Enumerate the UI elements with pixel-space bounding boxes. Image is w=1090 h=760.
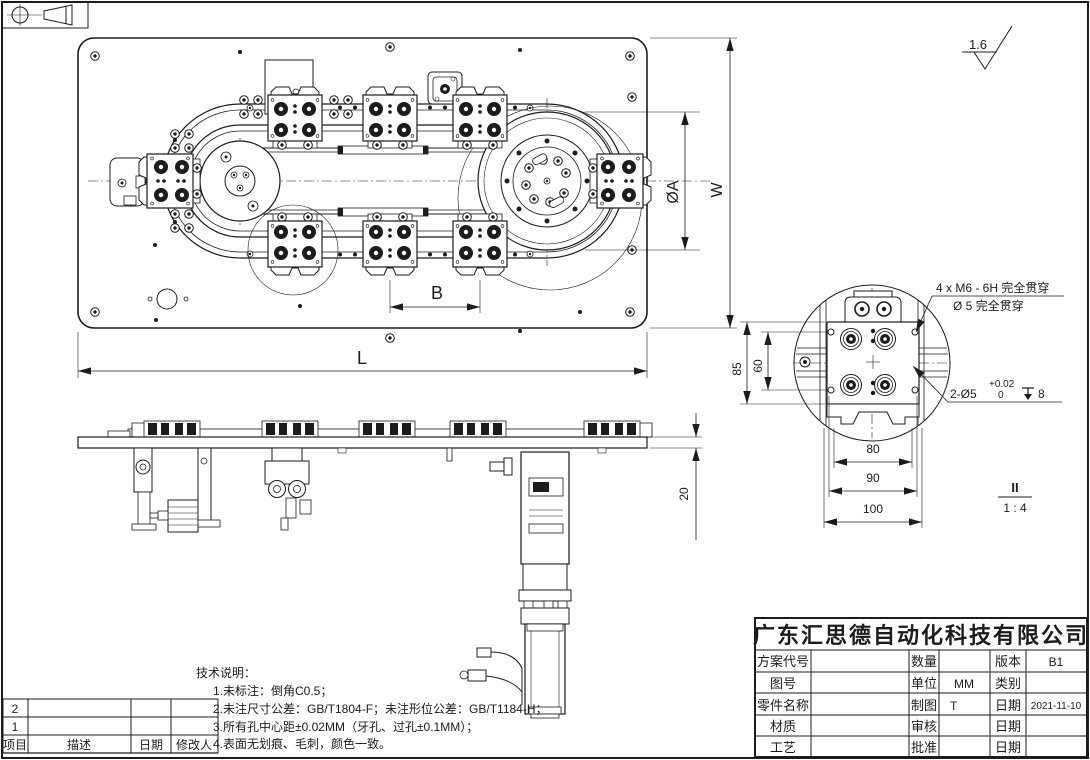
svg-text:4 x M6 - 6H 完全贯穿: 4 x M6 - 6H 完全贯穿 — [936, 280, 1049, 295]
revision-header: 修改人 — [176, 737, 212, 752]
svg-text:Ø 5 完全贯穿: Ø 5 完全贯穿 — [953, 298, 1024, 313]
company-name: 广东汇思德自动化科技有限公司 — [753, 623, 1089, 648]
dim-W-label: W — [709, 182, 726, 198]
cable-connector — [477, 648, 491, 657]
tb-label: 类别 — [995, 676, 1021, 691]
tb-label: 数量 — [911, 654, 937, 669]
tb-label: 版本 — [995, 654, 1021, 669]
tb-label: 日期 — [995, 740, 1021, 755]
tb-label: 审核 — [911, 719, 937, 734]
tb-label: 工艺 — [770, 740, 796, 755]
svg-text:80: 80 — [866, 442, 880, 456]
center-clamp-assembly — [265, 448, 311, 530]
note-line: 2.未注尺寸公差：GB/T1804-F；未注形位公差：GB/T1184-H； — [213, 701, 548, 716]
revision-header: 描述 — [67, 738, 91, 752]
top-view: W ØA L B — [78, 38, 737, 378]
svg-text:II: II — [1011, 480, 1018, 495]
notes-title: 技术说明： — [196, 665, 256, 680]
revision-table: 2 1 项目 描述 日期 修改人 — [3, 699, 218, 753]
note-line: 3.所有孔中心距±0.02MM（牙孔、过孔±0.1MM）； — [213, 719, 478, 734]
detail-label: II 1 : 4 — [998, 480, 1032, 515]
dimension-W: W — [650, 38, 737, 328]
tb-value: 2021-11-10 — [1031, 701, 1082, 712]
svg-text:8: 8 — [1038, 387, 1045, 401]
svg-text:60: 60 — [751, 359, 765, 373]
depth-symbol-icon — [1022, 388, 1034, 400]
tb-value: T — [950, 699, 958, 713]
tb-label: 制图 — [911, 698, 937, 713]
dimension-L: L — [78, 332, 647, 378]
note-line: 1.未标注：倒角C0.5； — [213, 683, 332, 698]
title-block: 广东汇思德自动化科技有限公司 方案代号 数量 版本 B1 图号 单位 MM 类别… — [753, 618, 1089, 757]
drawing-sheet: 1.6 — [0, 0, 1090, 760]
tb-label: 图号 — [770, 676, 796, 691]
tb-value: B1 — [1049, 655, 1064, 669]
tb-label: 日期 — [995, 719, 1021, 734]
dim-dial-label: ØA — [665, 180, 682, 203]
dim-20-label: 20 — [677, 487, 691, 501]
dim-L-label: L — [357, 348, 367, 368]
surface-finish-symbol: 1.6 — [962, 26, 1012, 69]
tb-label: 单位 — [911, 676, 937, 691]
svg-text:85: 85 — [730, 362, 744, 376]
tech-notes: 技术说明： 1.未标注：倒角C0.5； 2.未注尺寸公差：GB/T1804-F；… — [196, 665, 548, 751]
svg-text:90: 90 — [866, 471, 880, 485]
svg-text:0: 0 — [998, 390, 1004, 401]
revision-row-item: 2 — [12, 702, 19, 716]
left-pulley — [200, 141, 280, 221]
roughness-value: 1.6 — [969, 37, 987, 52]
projection-symbol — [2, 2, 88, 28]
base-plate-section — [78, 437, 647, 448]
motor-assembly — [460, 452, 571, 718]
left-bracket-assembly — [132, 448, 220, 532]
tb-label: 日期 — [995, 698, 1021, 713]
dimension-plate-thickness: 20 — [650, 413, 702, 540]
drawing-canvas: 1.6 — [0, 0, 1090, 760]
svg-text:2-Ø5: 2-Ø5 — [950, 387, 977, 401]
cable-connector — [468, 670, 486, 681]
detail-scale: 1 : 4 — [1003, 501, 1027, 515]
tb-label: 批准 — [911, 740, 937, 755]
tb-value: MM — [954, 677, 974, 691]
revision-header: 项目 — [3, 738, 27, 752]
revision-row-item: 1 — [12, 720, 19, 734]
note-line: 4.表面无划痕、毛刺，颜色一致。 — [213, 736, 391, 751]
detail-view: 85 60 80 90 100 4 x M6 - 6H 完全贯穿 Ø 5 完全贯… — [730, 280, 1064, 528]
tb-label: 材质 — [770, 719, 796, 734]
tb-label: 零件名称 — [757, 698, 809, 713]
cone-icon — [44, 5, 72, 25]
revision-header: 日期 — [139, 738, 163, 752]
drop-pin — [447, 448, 452, 461]
front-view: 20 — [78, 413, 702, 718]
svg-text:+0.02: +0.02 — [989, 379, 1015, 390]
tb-label: 方案代号 — [757, 654, 809, 669]
dim-B-label: B — [431, 283, 443, 303]
svg-text:100: 100 — [863, 502, 883, 516]
